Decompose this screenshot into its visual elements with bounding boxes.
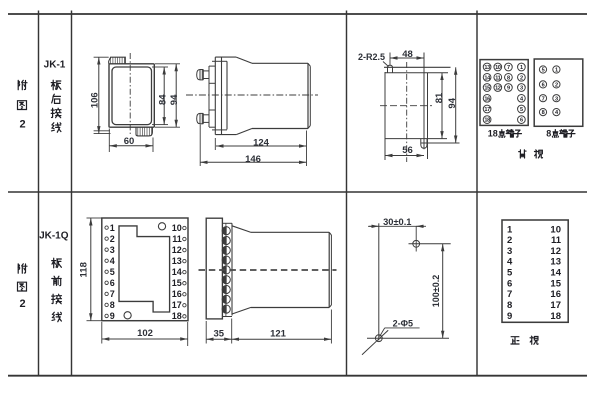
svg-text:18: 18 [550,311,561,322]
svg-text:5: 5 [520,107,523,113]
svg-text:6: 6 [520,118,523,124]
svg-text:106: 106 [90,92,101,108]
svg-text:146: 146 [245,154,261,165]
svg-text:2-R2.5: 2-R2.5 [358,52,385,62]
svg-text:4: 4 [507,257,513,268]
svg-text:121: 121 [270,328,287,339]
svg-text:13: 13 [172,256,182,266]
svg-text:7: 7 [110,289,115,299]
svg-text:15: 15 [172,278,182,288]
svg-text:4: 4 [110,256,115,266]
svg-text:9: 9 [507,311,512,322]
svg-text:5: 5 [507,268,513,279]
svg-text:14: 14 [172,267,182,277]
svg-text:16: 16 [172,289,182,299]
svg-text:8: 8 [110,300,115,310]
svg-text:11: 11 [551,235,562,246]
svg-text:1: 1 [110,223,115,233]
svg-text:30±0.1: 30±0.1 [383,217,411,227]
svg-text:100±0.2: 100±0.2 [431,275,441,307]
svg-text:9: 9 [507,86,510,92]
svg-text:9: 9 [110,311,115,321]
svg-text:15: 15 [550,278,561,289]
svg-text:2: 2 [19,298,25,310]
svg-text:8: 8 [507,75,510,81]
svg-text:5: 5 [110,267,115,277]
svg-text:17: 17 [484,107,490,113]
svg-text:1: 1 [520,65,523,71]
svg-text:56: 56 [402,145,413,156]
svg-text:2: 2 [507,235,512,246]
svg-text:94: 94 [447,97,458,108]
svg-text:16: 16 [550,289,561,300]
svg-text:12: 12 [550,246,561,257]
svg-text:102: 102 [137,328,153,339]
svg-text:35: 35 [214,329,225,340]
svg-text:81: 81 [434,92,445,103]
svg-text:7: 7 [542,96,545,102]
svg-text:3: 3 [507,246,512,257]
svg-text:18: 18 [484,118,490,124]
svg-text:16: 16 [484,96,490,102]
svg-text:18: 18 [172,311,182,321]
svg-text:10: 10 [550,224,561,235]
svg-text:48: 48 [402,49,413,60]
svg-text:18: 18 [488,128,498,138]
svg-text:10: 10 [495,65,501,71]
svg-text:118: 118 [79,262,90,277]
svg-text:13: 13 [550,257,561,268]
svg-text:124: 124 [253,138,270,149]
svg-text:2: 2 [19,118,25,130]
svg-text:6: 6 [542,83,545,89]
svg-text:15: 15 [484,86,490,92]
svg-text:7: 7 [507,65,510,71]
svg-text:3: 3 [520,86,523,92]
svg-text:12: 12 [172,245,182,255]
svg-text:10: 10 [172,223,182,233]
svg-text:94: 94 [169,94,180,105]
svg-text:3: 3 [555,96,558,102]
svg-text:1: 1 [555,68,558,74]
svg-text:8: 8 [507,300,512,311]
svg-text:84: 84 [157,94,168,105]
svg-text:11: 11 [495,75,500,81]
svg-text:7: 7 [507,289,512,300]
svg-text:2: 2 [555,83,558,89]
svg-text:2: 2 [520,75,523,81]
svg-text:JK-1Q: JK-1Q [39,230,69,241]
svg-text:13: 13 [484,65,490,71]
svg-text:6: 6 [507,278,512,289]
svg-text:2-Φ5: 2-Φ5 [393,319,413,329]
svg-text:JK-1: JK-1 [44,60,66,71]
svg-text:14: 14 [550,268,561,279]
svg-text:3: 3 [110,245,115,255]
svg-text:17: 17 [172,300,182,310]
svg-text:60: 60 [124,136,135,147]
svg-text:8: 8 [546,128,551,138]
svg-text:8: 8 [542,110,545,116]
svg-text:12: 12 [495,86,501,92]
svg-text:17: 17 [550,300,561,311]
svg-text:11: 11 [172,234,182,244]
svg-text:2: 2 [110,234,115,244]
svg-text:1: 1 [507,224,513,235]
svg-text:6: 6 [110,278,115,288]
svg-text:5: 5 [542,68,545,74]
